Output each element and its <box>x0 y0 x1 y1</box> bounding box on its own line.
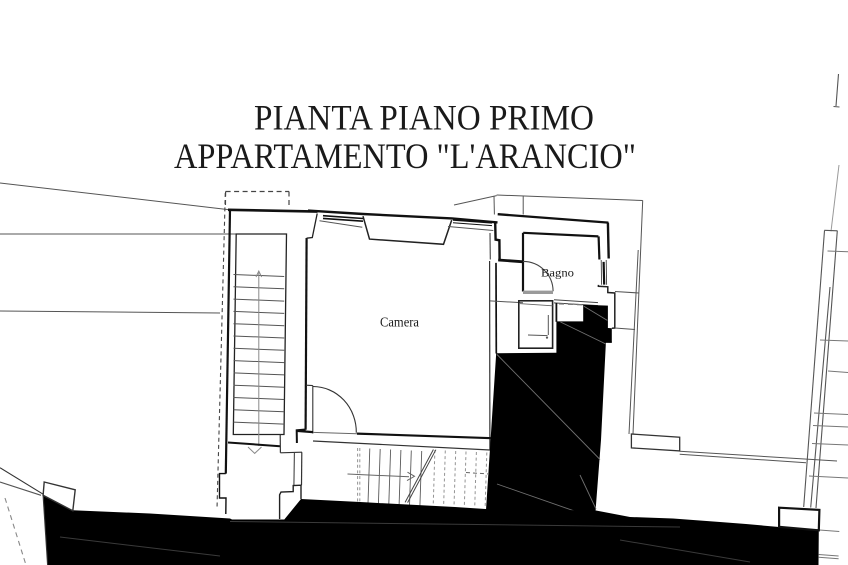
svg-text:Bagno: Bagno <box>541 266 574 280</box>
svg-text:PIANTA PIANO PRIMO: PIANTA PIANO PRIMO <box>254 97 594 137</box>
svg-text:Camera: Camera <box>380 315 420 330</box>
svg-text:APPARTAMENTO "L'ARANCIO": APPARTAMENTO "L'ARANCIO" <box>174 136 636 176</box>
